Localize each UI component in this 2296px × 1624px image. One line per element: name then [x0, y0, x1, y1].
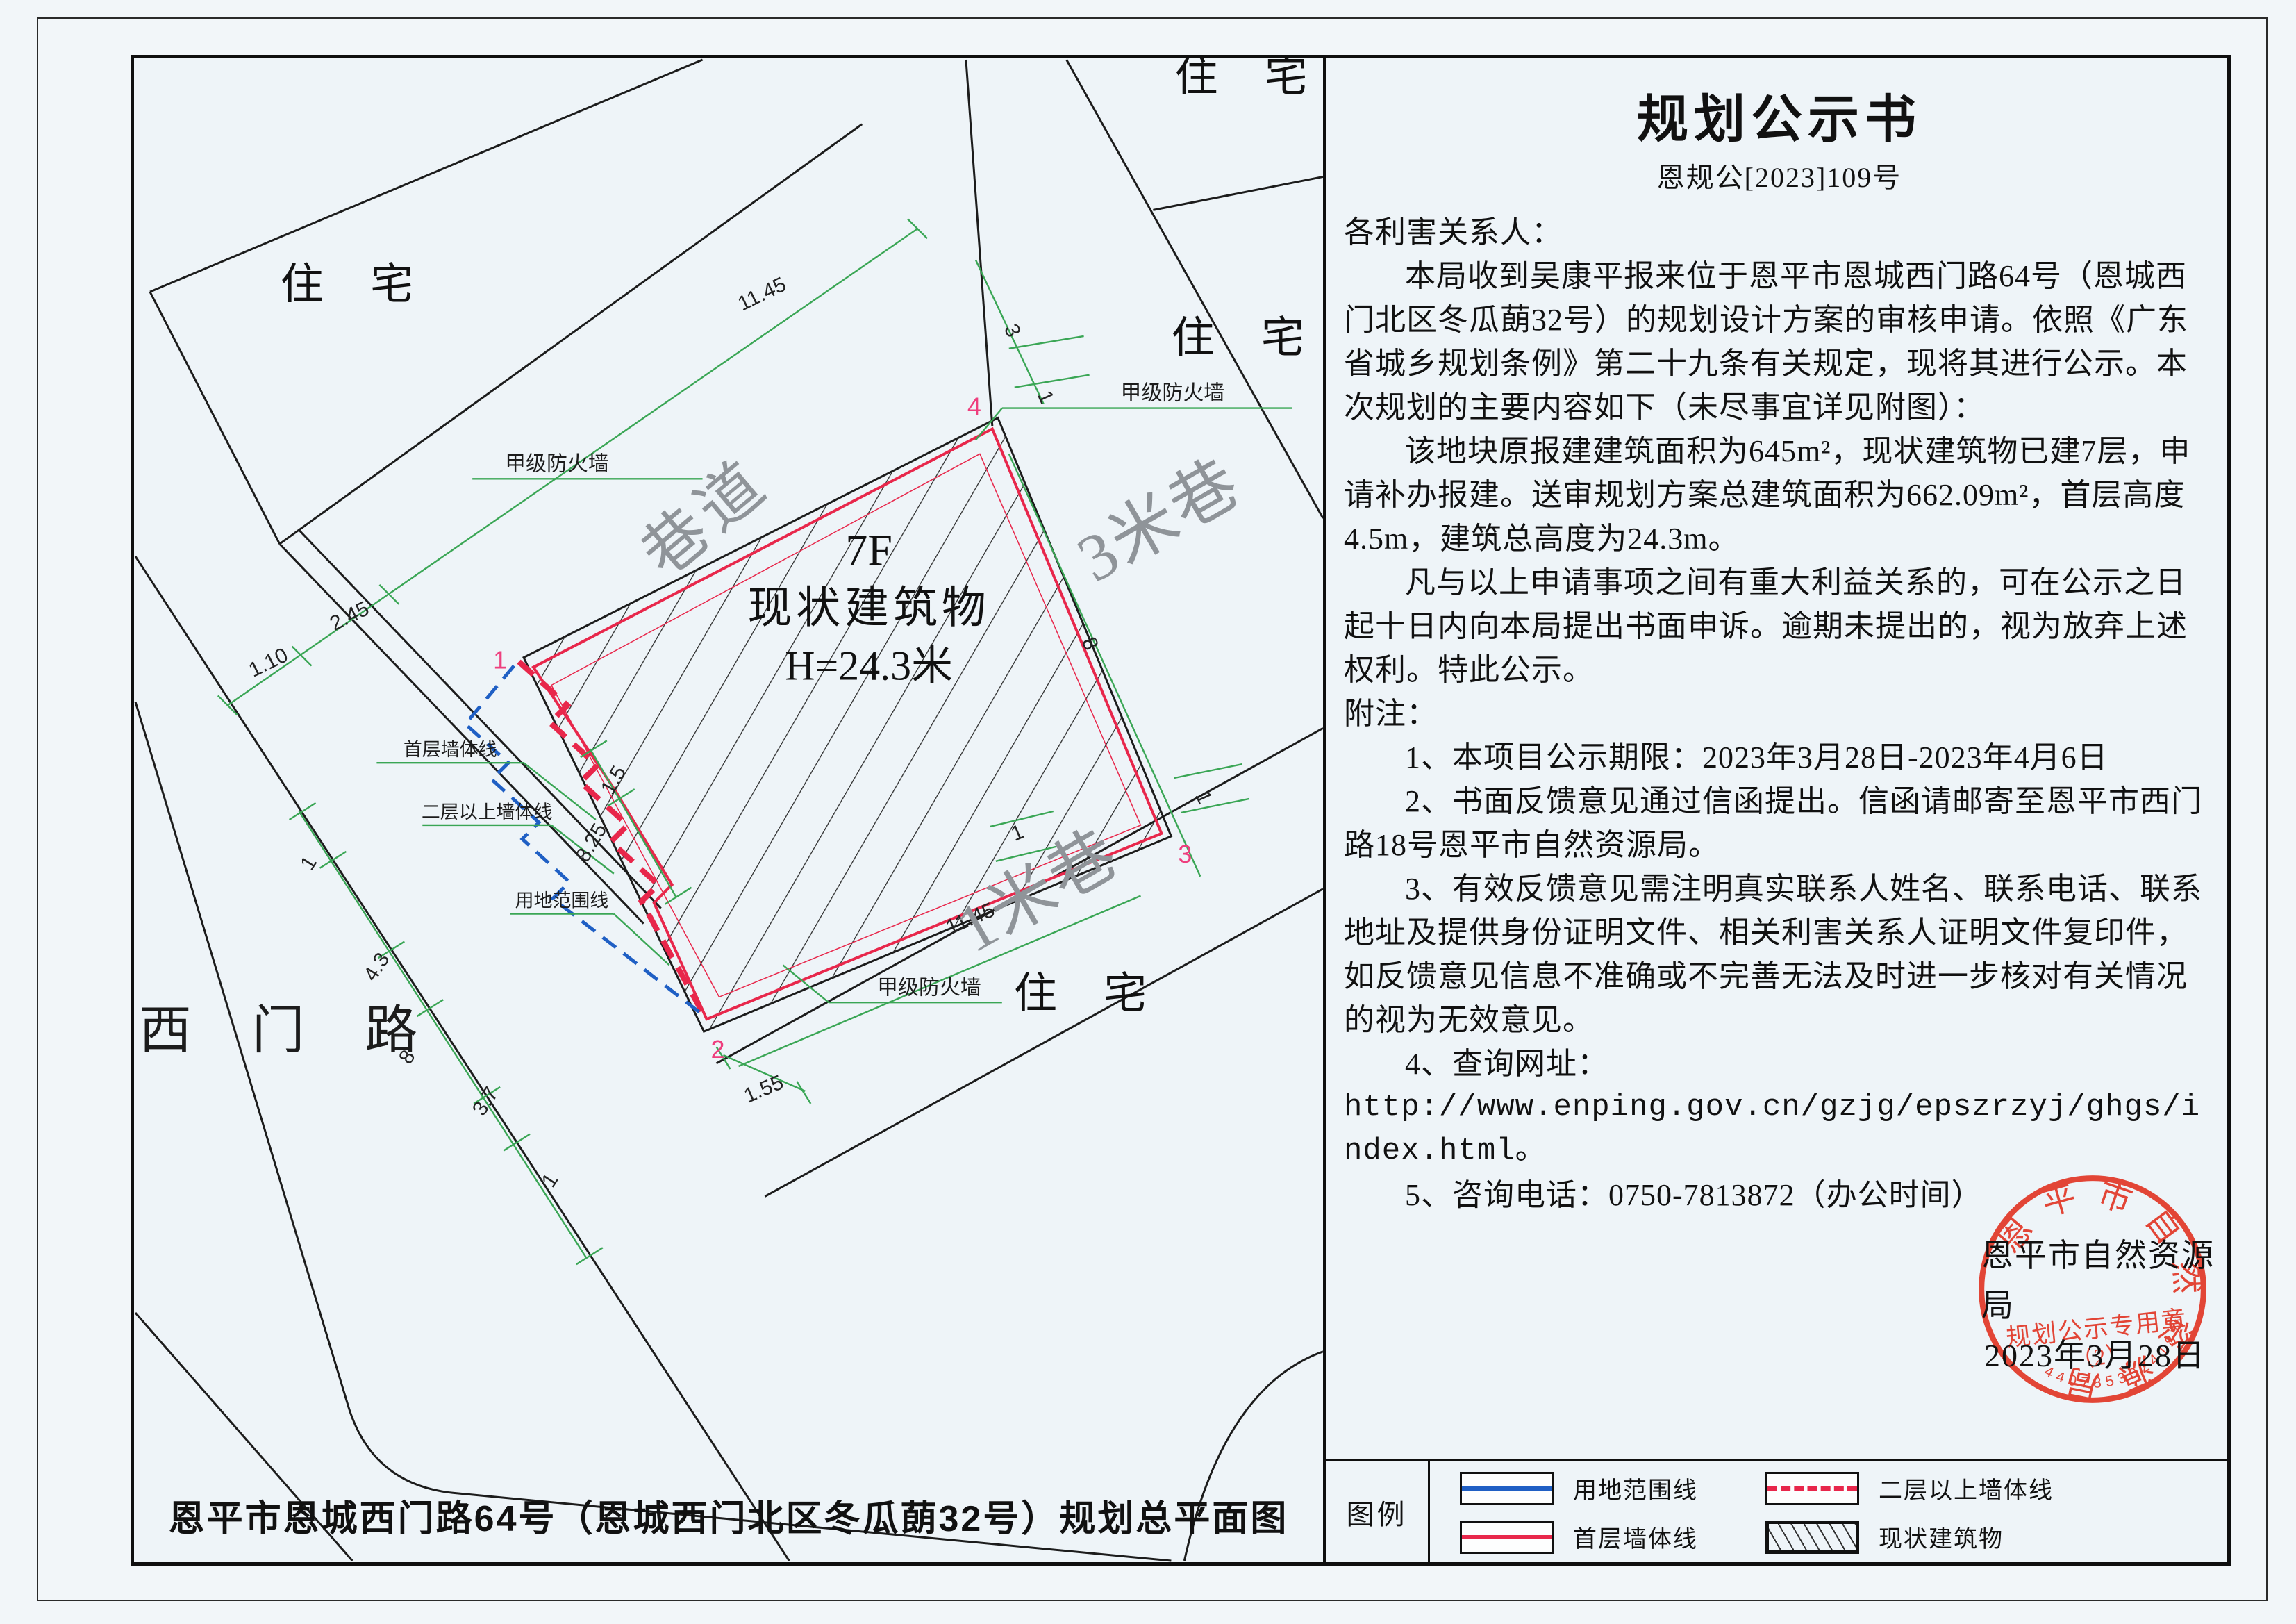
signature-block: 恩平市自然资源局 2023年3月28日 [1981, 1231, 2227, 1381]
firewall-label-1: 甲级防火墙 [505, 452, 609, 475]
first-floor-wall-swatch [1460, 1521, 1554, 1554]
first-floor-wall-label: 首层墙体线 [404, 739, 497, 760]
firewall-label-2: 甲级防火墙 [1121, 382, 1225, 405]
plan-caption: 恩平市恩城西门路64号（恩城西门北区冬瓜蓢32号）规划总平面图 [134, 1489, 1323, 1541]
dim-value: 1 [296, 852, 322, 875]
note-item: 3、有效反馈意见需注明真实联系人姓名、联系电话、联系地址及提供身份证明文件、相关… [1344, 867, 2215, 1042]
upper-wall-swatch [1765, 1472, 1859, 1505]
legend-item-first-floor-wall: 首层墙体线 [1460, 1520, 1698, 1554]
legend-item-label: 现状建筑物 [1879, 1520, 2004, 1554]
notes-heading: 附注： [1344, 692, 2215, 736]
site-boundary-swatch [1460, 1472, 1554, 1505]
legend-label: 图例 [1326, 1461, 1430, 1562]
signature-org: 恩平市自然资源局 [1981, 1231, 2227, 1331]
corner-3: 3 [1178, 840, 1192, 868]
legend: 图例 用地范围线 二层以上墙体线 首层墙体线 [1326, 1459, 2227, 1562]
site-plan: 11.45 2.45 1.10 3 1 8 1 11.45 1 1.55 1.5… [134, 58, 1323, 1562]
legend-item-label: 二层以上墙体线 [1879, 1471, 2054, 1505]
notice-title: 规划公示书 [1344, 78, 2215, 152]
building-height: H=24.3米 [785, 643, 953, 689]
legend-items: 用地范围线 二层以上墙体线 首层墙体线 现状建筑物 [1432, 1461, 2227, 1562]
legend-item-existing-building: 现状建筑物 [1765, 1520, 2004, 1554]
paragraph: 该地块原报建建筑面积为645m²，现状建筑物已建7层，申请补办报建。送审规划方案… [1344, 429, 2215, 561]
paragraph: 凡与以上申请事项之间有重大利益关系的，可在公示之日起十日内向本局提出书面申诉。逾… [1344, 561, 2215, 692]
building-hatch [488, 383, 1215, 1069]
existing-building-swatch [1765, 1521, 1859, 1554]
red-solid-line-icon [1462, 1535, 1552, 1539]
notice-body: 各利害关系人： 本局收到吴康平报来位于恩平市恩城西门路64号（恩城西门北区冬瓜蓢… [1344, 210, 2215, 1217]
note-item: 2、书面反馈意见通过信函提出。信函请邮寄至恩平市西门路18号恩平市自然资源局。 [1344, 779, 2215, 867]
notice-sheet: 11.45 2.45 1.10 3 1 8 1 11.45 1 1.55 1.5… [131, 55, 2231, 1566]
corner-4: 4 [967, 392, 981, 421]
legend-item-site-boundary: 用地范围线 [1460, 1471, 1698, 1505]
residential-label-tl: 住 宅 [281, 261, 431, 308]
dim-value: 11.45 [734, 273, 790, 315]
inquiry-url: http://www.enping.gov.cn/gzjg/epszrzyj/g… [1344, 1086, 2215, 1173]
dim-value: 2.45 [326, 597, 373, 636]
corner-2: 2 [711, 1035, 725, 1063]
residential-label-mr: 住 宅 [1172, 315, 1322, 362]
paragraph: 本局收到吴康平报来位于恩平市恩城西门路64号（恩城西门北区冬瓜蓢32号）的规划设… [1344, 254, 2215, 429]
dim-value: 1.10 [245, 643, 292, 681]
legend-item-upper-wall: 二层以上墙体线 [1765, 1471, 2054, 1505]
residential-label-br: 住 宅 [1014, 970, 1165, 1018]
note-item: 4、查询网址： [1344, 1042, 2215, 1086]
site-plan-drawing: 11.45 2.45 1.10 3 1 8 1 11.45 1 1.55 1.5… [134, 58, 1323, 1562]
corner-1: 1 [493, 646, 507, 674]
site-boundary-label: 用地范围线 [515, 890, 609, 911]
dim-value: 1.55 [740, 1071, 787, 1108]
salutation: 各利害关系人： [1344, 210, 2215, 254]
legend-item-label: 首层墙体线 [1573, 1520, 1698, 1554]
signature-date: 2023年3月28日 [1984, 1331, 2227, 1381]
legend-item-label: 用地范围线 [1573, 1471, 1698, 1505]
ximen-road-label: 西 门 路 [139, 1002, 441, 1060]
building-floors: 7F [845, 525, 892, 574]
residential-label-tr: 住 宅 [1175, 58, 1323, 101]
dim-value: 4.3 [359, 949, 394, 986]
red-dashed-line-icon [1767, 1486, 1857, 1491]
building-name: 现状建筑物 [747, 583, 990, 633]
upper-wall-label: 二层以上墙体线 [422, 802, 553, 822]
firewall-label-3: 甲级防火墙 [877, 976, 981, 999]
note-item: 1、本项目公示期限：2023年3月28日-2023年4月6日 [1344, 736, 2215, 779]
blue-solid-line-icon [1462, 1486, 1552, 1491]
dim-value: 1 [1191, 788, 1217, 808]
lane-east-label: 3米巷 [1065, 445, 1254, 596]
notice-doc-number: 恩规公[2023]109号 [1344, 155, 2215, 195]
